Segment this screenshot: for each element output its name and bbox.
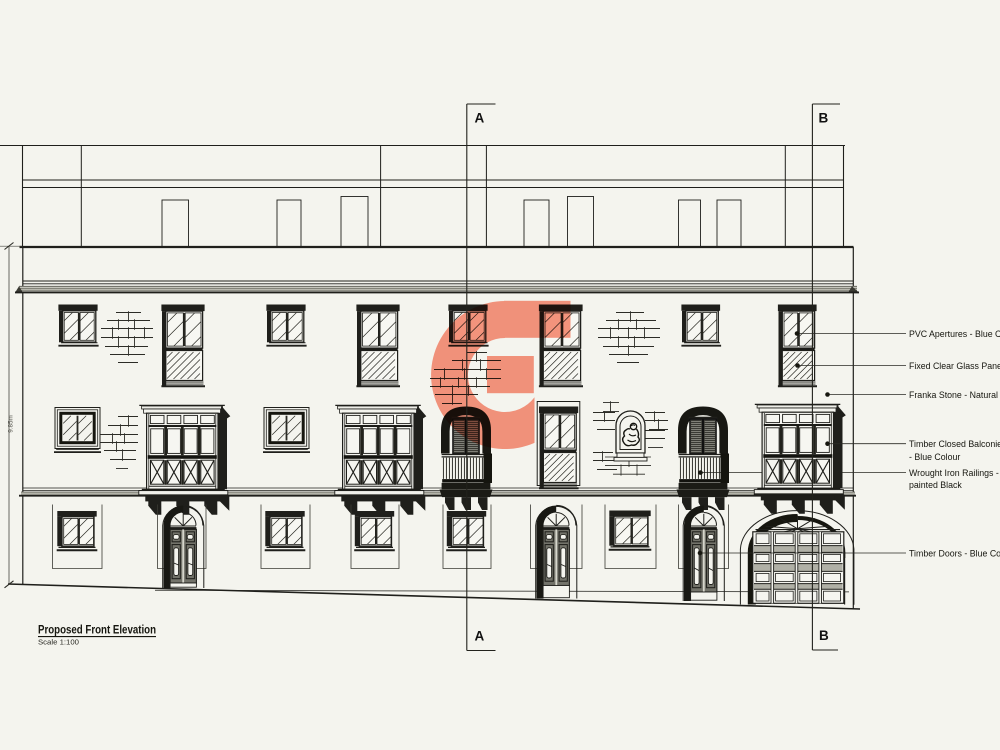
- svg-text:A: A: [475, 111, 485, 126]
- svg-text:Fixed Clear Glass Panels: Fixed Clear Glass Panels: [909, 361, 1000, 371]
- svg-text:PVC Apertures - Blue Colour: PVC Apertures - Blue Colour: [909, 329, 1000, 339]
- svg-text:Franka Stone - Natural: Franka Stone - Natural: [909, 390, 998, 400]
- svg-text:Scale 1:100: Scale 1:100: [38, 638, 79, 647]
- svg-text:B: B: [819, 628, 829, 643]
- svg-text:Timber Closed Balconies: Timber Closed Balconies: [909, 439, 1000, 449]
- svg-text:Wrought Iron Railings -: Wrought Iron Railings -: [909, 468, 999, 478]
- svg-text:- Blue Colour: - Blue Colour: [909, 452, 960, 462]
- svg-text:painted Black: painted Black: [909, 480, 962, 490]
- svg-text:B: B: [819, 111, 829, 126]
- svg-text:Proposed Front Elevation: Proposed Front Elevation: [38, 625, 156, 637]
- svg-text:A: A: [475, 629, 485, 644]
- svg-text:Timber Doors - Blue Colour: Timber Doors - Blue Colour: [909, 548, 1000, 558]
- svg-text:9.85m: 9.85m: [7, 415, 14, 433]
